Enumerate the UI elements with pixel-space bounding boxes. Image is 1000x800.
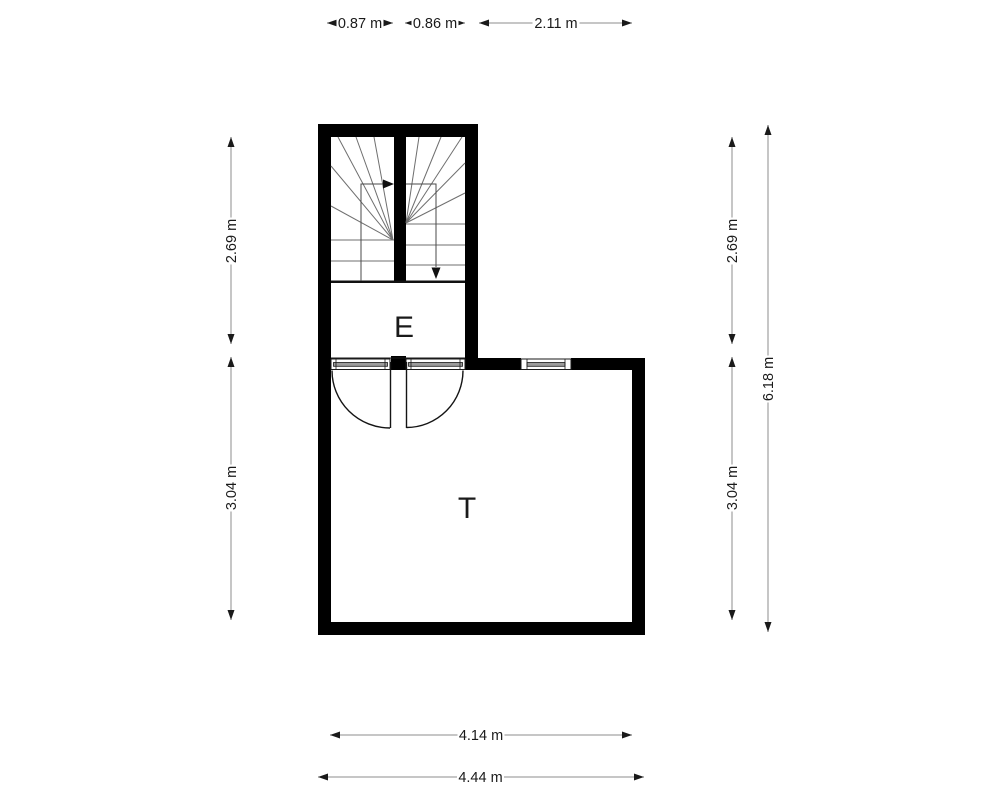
dim-arrow-down-icon bbox=[765, 622, 772, 632]
door-swing-right bbox=[407, 362, 464, 428]
floorplan-viewer: E T 0.87 m 0.86 m 2.11 m bbox=[0, 0, 1000, 800]
stair-flight-left bbox=[331, 137, 394, 261]
dim-arrow-up-icon bbox=[228, 137, 235, 147]
dim-arrow-left-icon bbox=[318, 774, 328, 781]
dimension-top-2: 0.86 m bbox=[405, 15, 465, 32]
wall-bottom bbox=[318, 622, 645, 635]
room-label-t: T bbox=[458, 492, 476, 525]
dim-arrow-down-icon bbox=[228, 610, 235, 620]
dim-arrow-up-icon bbox=[729, 357, 736, 367]
dim-arrow-right-icon bbox=[634, 774, 644, 781]
dim-arrow-down-icon bbox=[228, 334, 235, 344]
dim-arrow-down-icon bbox=[729, 334, 736, 344]
dim-arrow-up-icon bbox=[729, 137, 736, 147]
floor-plan: E T 0.87 m 0.86 m 2.11 m bbox=[0, 0, 1000, 800]
wall-t-north-b bbox=[571, 358, 632, 370]
window bbox=[521, 359, 571, 370]
wall-left bbox=[318, 124, 331, 635]
dim-arrow-up-icon bbox=[765, 125, 772, 135]
stair-down-arrow-icon bbox=[432, 268, 441, 280]
dimension-label: 3.04 m bbox=[725, 466, 741, 510]
dim-arrow-left-icon bbox=[330, 732, 340, 739]
stair-landing-edge bbox=[331, 281, 465, 284]
dimension-label: 4.44 m bbox=[458, 770, 502, 786]
dimension-top-1: 0.87 m bbox=[327, 15, 393, 32]
dim-arrow-left-icon bbox=[479, 20, 489, 27]
dim-arrow-up-icon bbox=[228, 357, 235, 367]
dimension-label: 2.69 m bbox=[224, 219, 240, 263]
dimension-bottom-outer: 4.44 m bbox=[318, 769, 644, 786]
walls bbox=[318, 124, 645, 635]
dim-arrow-down-icon bbox=[729, 610, 736, 620]
dimension-label: 2.11 m bbox=[534, 16, 577, 32]
dimension-label: 0.86 m bbox=[413, 16, 457, 32]
wall-t-north-a bbox=[478, 358, 521, 370]
room-label-e: E bbox=[394, 311, 414, 344]
glazed-door-right bbox=[406, 359, 465, 370]
dimension-top-3: 2.11 m bbox=[479, 15, 632, 32]
wall-stairwell-right bbox=[465, 124, 478, 370]
stair-up-arrow-icon bbox=[383, 180, 394, 189]
dim-arrow-right-icon bbox=[622, 20, 632, 27]
door-swing-left bbox=[332, 362, 391, 428]
dimension-left-upper: 2.69 m bbox=[223, 137, 240, 344]
dim-arrow-left-icon bbox=[327, 20, 337, 27]
dimension-bottom-inner: 4.14 m bbox=[330, 727, 632, 744]
door-arc bbox=[332, 371, 390, 429]
dimension-label: 0.87 m bbox=[338, 16, 382, 32]
glazed-door-left bbox=[331, 359, 390, 370]
dimension-label: 4.14 m bbox=[459, 728, 503, 744]
wall-right bbox=[632, 358, 645, 635]
wall-stair-middle bbox=[394, 124, 406, 282]
dimension-label: 6.18 m bbox=[761, 357, 777, 401]
dim-arrow-right-icon bbox=[622, 732, 632, 739]
dimension-right-upper: 2.69 m bbox=[724, 137, 741, 344]
dimension-left-lower: 3.04 m bbox=[223, 357, 240, 620]
dimension-right-total: 6.18 m bbox=[760, 125, 777, 632]
dimension-right-lower: 3.04 m bbox=[724, 357, 741, 620]
dimension-label: 3.04 m bbox=[224, 466, 240, 510]
door-arc bbox=[407, 371, 464, 428]
openings bbox=[331, 358, 571, 428]
dimension-label: 2.69 m bbox=[725, 219, 741, 263]
dim-arrow-right-icon bbox=[383, 20, 393, 27]
